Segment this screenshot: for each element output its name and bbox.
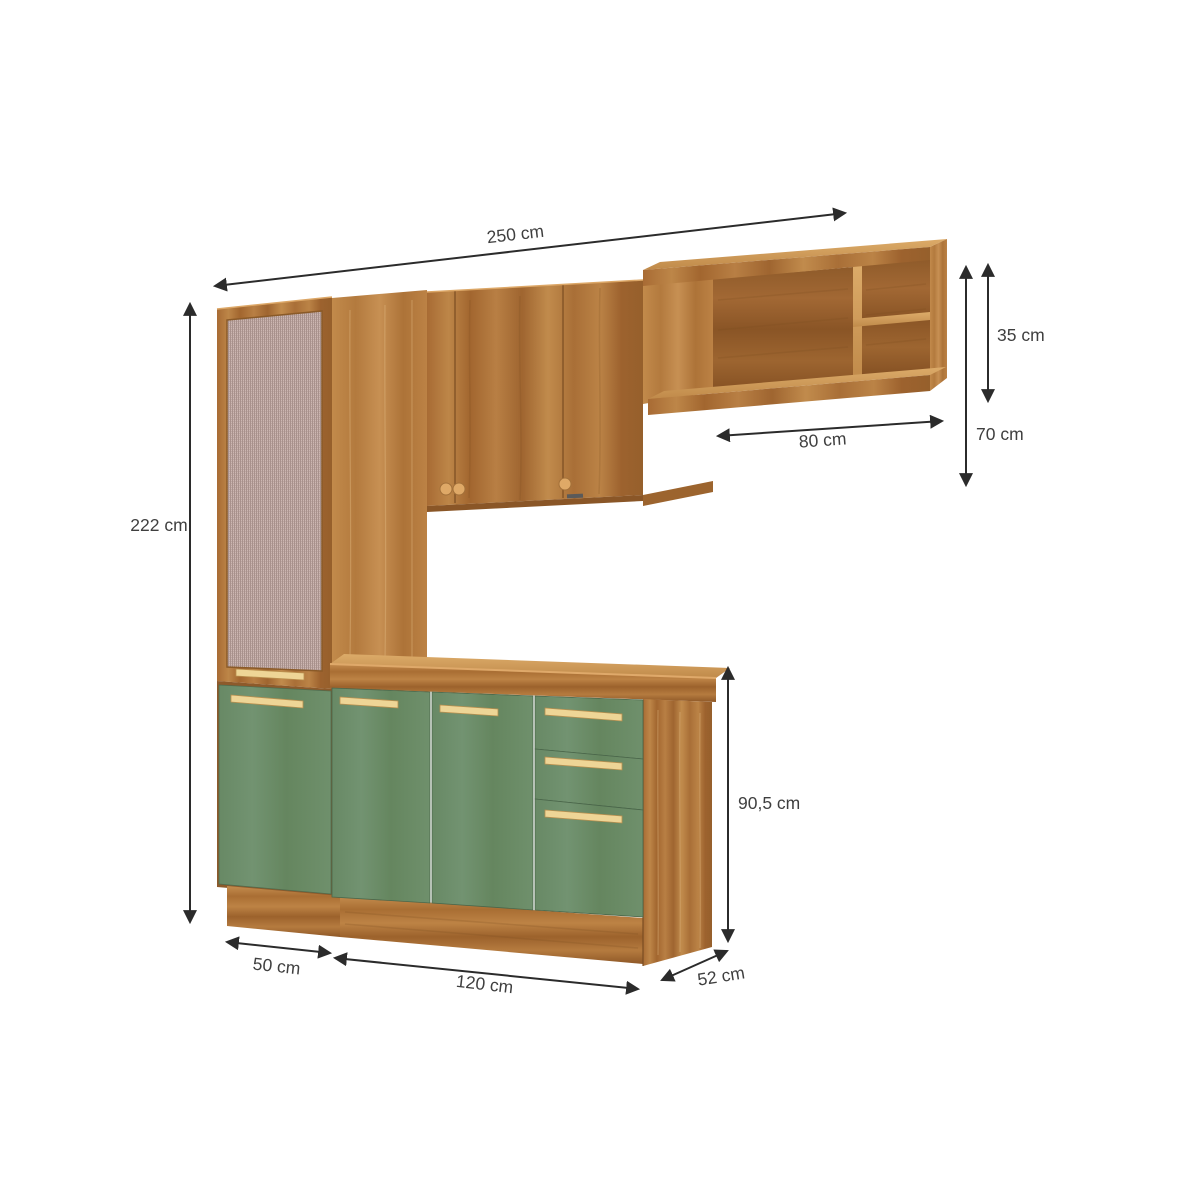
wall-door-knob-middle: [453, 483, 465, 495]
dim-label-total-width: 250 cm: [486, 221, 545, 247]
dim-label-left-cabinet-width: 50 cm: [252, 954, 301, 979]
wall-cabinet-bottom-side: [643, 481, 713, 506]
dim-arrow-left-cabinet-width: [227, 942, 330, 953]
filler-side-panel: [332, 290, 427, 667]
kitchen-dimension-diagram: 250 cm 222 cm 35 cm 70 cm 80 cm 90,5 cm …: [0, 0, 1200, 1200]
dim-label-compartment-height: 35 cm: [997, 325, 1045, 345]
tall-cabinet-screen-door: [227, 311, 322, 671]
niche-back-panel: [713, 267, 853, 392]
dim-label-depth: 52 cm: [696, 962, 746, 989]
kitchen-illustration: [217, 239, 947, 966]
wall-door-knob-left: [440, 483, 452, 495]
base-door-right: [432, 692, 533, 910]
base-drawer-top: [535, 696, 643, 759]
dim-label-total-height: 222 cm: [130, 515, 187, 535]
wall-door-knob-right: [559, 478, 571, 490]
dim-label-niche-width: 80 cm: [798, 428, 847, 451]
door-bottom-hinge: [567, 494, 583, 499]
tall-cabinet-green-door: [219, 685, 331, 894]
base-end-panel: [643, 699, 712, 966]
dim-label-base-height: 90,5 cm: [738, 793, 800, 813]
dim-label-wall-unit-height: 70 cm: [976, 424, 1024, 444]
wall-cabinet-face: [427, 280, 643, 506]
niche-left-side-panel: [643, 272, 713, 404]
base-door-left: [332, 688, 430, 903]
diagram-canvas: 250 cm 222 cm 35 cm 70 cm 80 cm 90,5 cm …: [0, 0, 1200, 1200]
